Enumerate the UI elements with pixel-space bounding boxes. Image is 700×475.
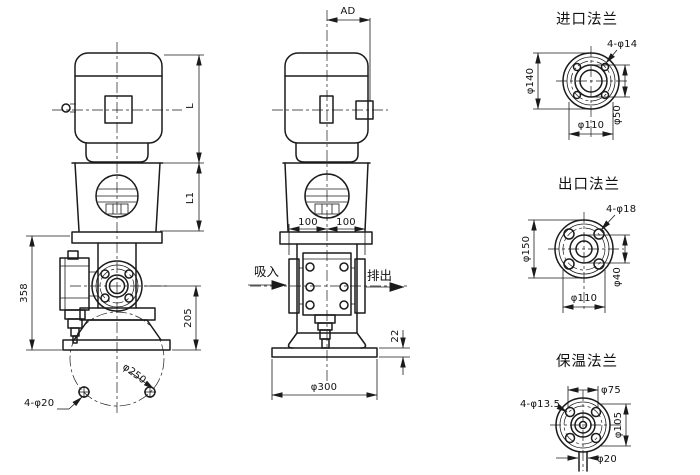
- insulation-flange-title: 保温法兰: [556, 353, 618, 370]
- insulation-flange-view: 保温法兰 φ75 4-φ13.5 φ105 φ20: [520, 353, 631, 471]
- dim-label-insulation-pipe: φ20: [597, 454, 617, 465]
- dim-label-358: 358: [19, 283, 30, 303]
- outlet-flange-view: 出口法兰 4-φ18 φ150 φ40 φ110: [521, 176, 636, 313]
- inlet-flange-view: 进口法兰 4-φ14 φ140 φ50 φ110: [525, 11, 637, 140]
- side-view-pump: [63, 232, 170, 398]
- dim-label-insulation-outer: φ105: [613, 412, 624, 438]
- dim-label-AD: AD: [341, 6, 356, 17]
- engineering-drawing: L L1 358 205 φ250 4-φ20: [0, 0, 700, 475]
- dim-label-L: L: [185, 103, 196, 109]
- dim-label-22: 22: [390, 329, 401, 342]
- dim-label-insulation-face: φ75: [601, 385, 621, 396]
- flow-label-suction: 吸入: [254, 264, 280, 279]
- flow-label-discharge: 排出: [367, 268, 392, 283]
- drawing-sheet: L L1 358 205 φ250 4-φ20: [0, 0, 700, 475]
- dim-label-inlet-face: φ50: [612, 105, 623, 125]
- dim-label-inlet-bolt-circle: φ110: [578, 120, 604, 131]
- dim-label-base-holes-4x20: 4-φ20: [24, 398, 54, 409]
- dim-label-insulation-holes: 4-φ13.5: [520, 399, 560, 410]
- dim-label-100-right: 100: [336, 217, 356, 228]
- dim-label-100-left: 100: [298, 217, 318, 228]
- front-view-pump: [272, 232, 377, 357]
- dim-label-base-dia-300: φ300: [311, 382, 337, 393]
- base-plate-side: [63, 340, 170, 350]
- base-plate-front: [272, 348, 377, 357]
- inlet-flange-title: 进口法兰: [556, 11, 618, 28]
- outlet-flange-dimensions: 4-φ18 φ150 φ40 φ110: [521, 204, 636, 313]
- dim-label-outlet-bolt-circle: φ110: [571, 293, 597, 304]
- side-view-safety-valve: [60, 251, 98, 343]
- dim-label-inlet-holes: 4-φ14: [607, 39, 637, 50]
- side-view: L L1 358 205 φ250 4-φ20: [19, 42, 204, 413]
- side-view-bracket: [72, 143, 163, 231]
- dim-label-205: 205: [183, 308, 194, 328]
- dim-label-inlet-outer: φ140: [525, 68, 536, 94]
- dim-label-bolt-circle-250: φ250: [120, 362, 148, 387]
- dim-label-outlet-holes: 4-φ18: [606, 204, 636, 215]
- dim-label-outlet-face: φ40: [612, 267, 623, 287]
- motor-nameplate: [105, 96, 132, 123]
- dim-label-L1: L1: [185, 192, 196, 204]
- front-view-bracket: [283, 143, 370, 231]
- dim-label-outlet-outer: φ150: [521, 236, 532, 262]
- front-view-motor: [285, 53, 373, 143]
- front-view: AD 100 100 吸入 排出 22 φ300: [248, 6, 410, 400]
- eyebolt-icon: [62, 104, 70, 112]
- side-view-motor: [62, 53, 162, 143]
- outlet-flange-title: 出口法兰: [558, 176, 620, 193]
